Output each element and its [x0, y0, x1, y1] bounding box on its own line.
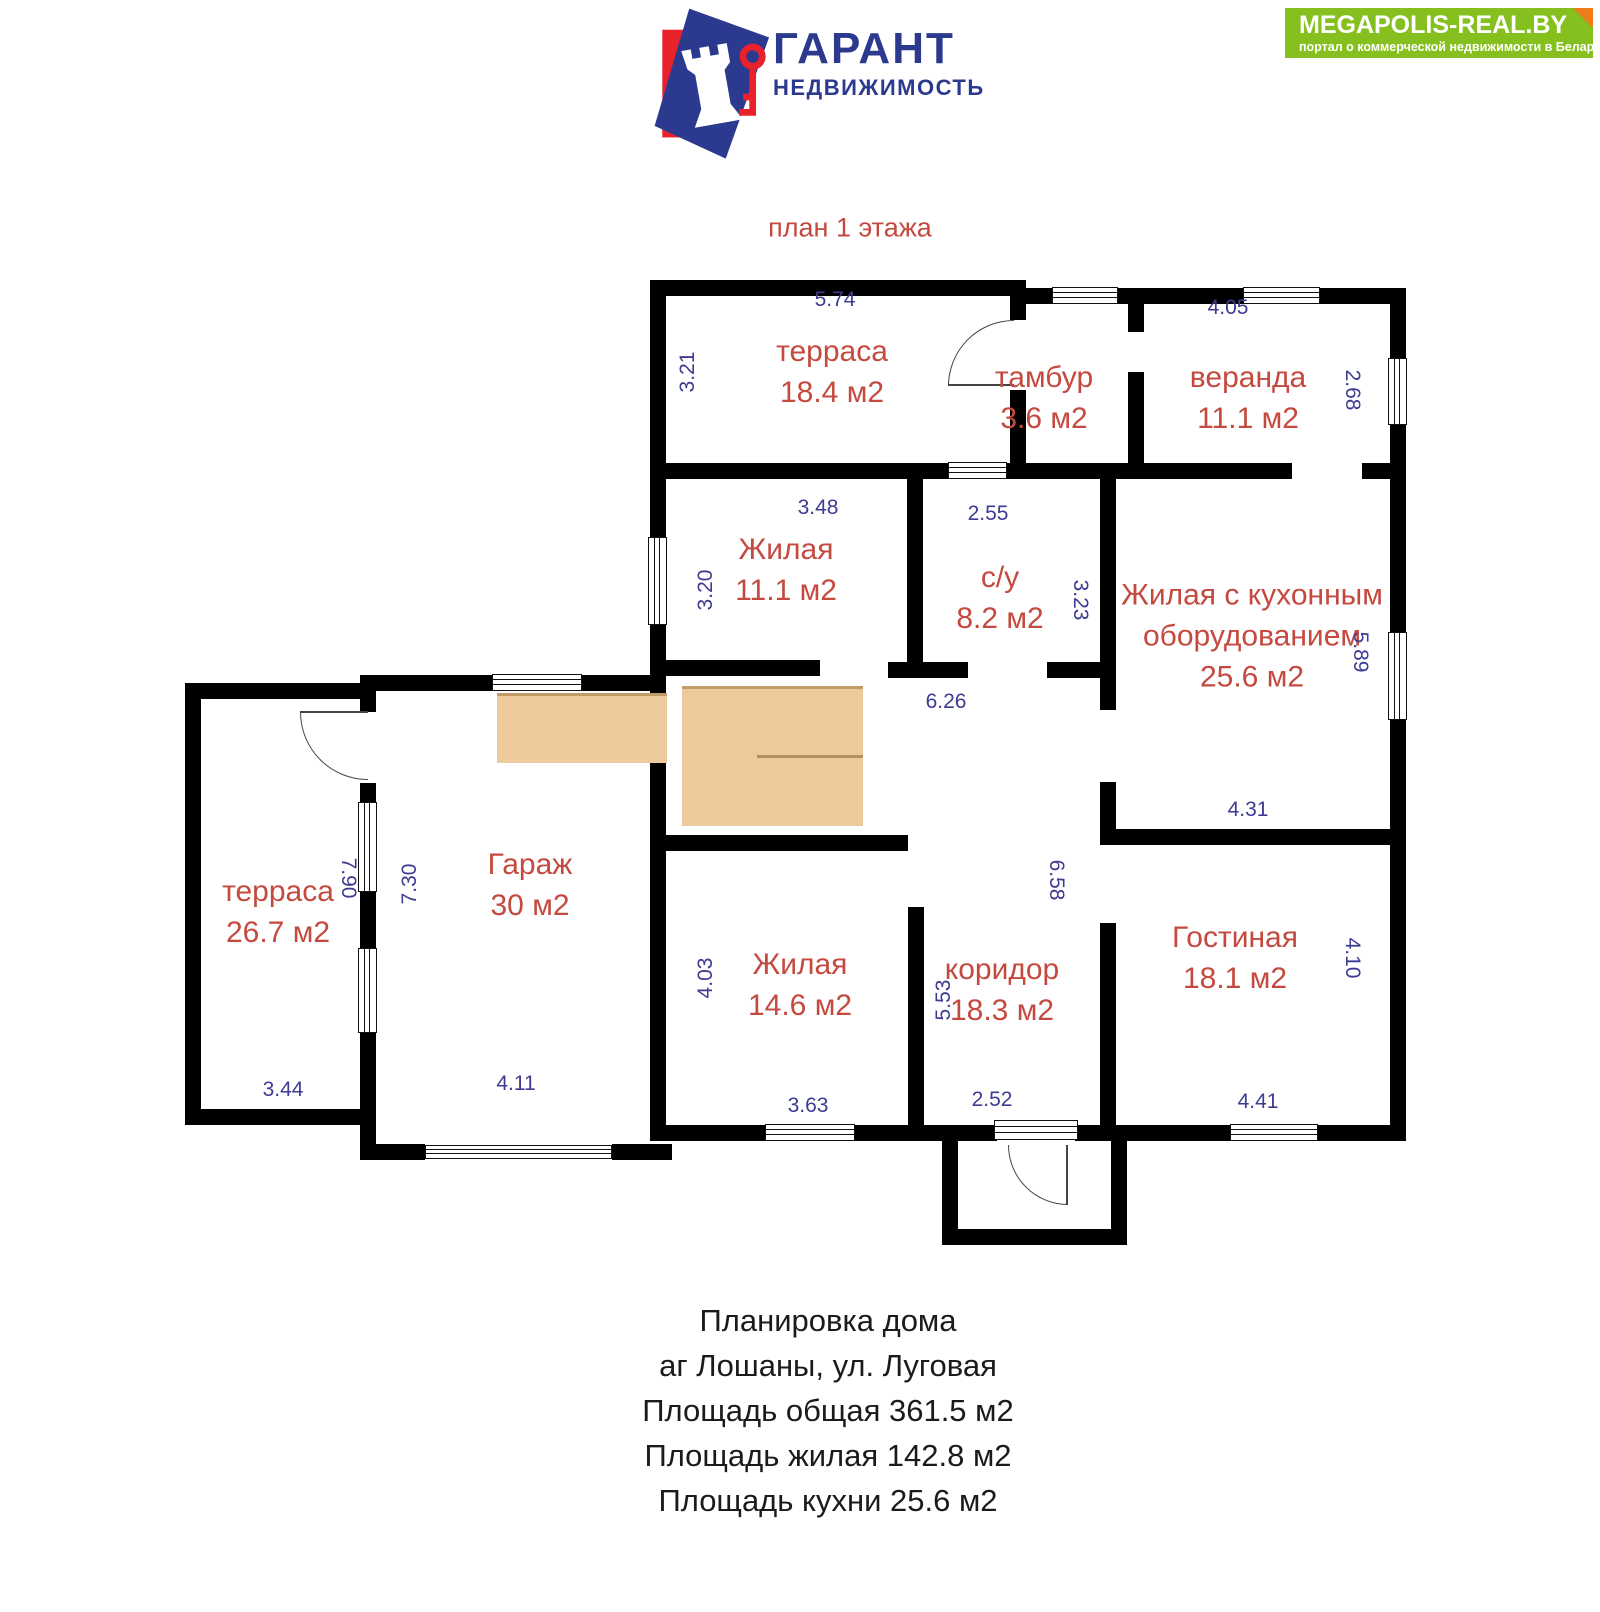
floor-plan-page: ГАРАНТ НЕДВИЖИМОСТЬ MEGAPOLIS-REAL.BY по…	[0, 0, 1600, 1612]
wall	[185, 1109, 376, 1125]
agency-name: ГАРАНТ НЕДВИЖИМОСТЬ	[773, 24, 985, 102]
room-name: с/у	[956, 557, 1043, 598]
dimension-label: 4.03	[694, 958, 718, 999]
agency-name-line1: ГАРАНТ	[773, 24, 985, 74]
wall	[888, 662, 968, 678]
wall	[1010, 280, 1026, 320]
dimension-label: 3.48	[798, 496, 839, 520]
wall	[650, 280, 666, 479]
room-name: терраса	[222, 871, 334, 912]
room-name: Жилая	[748, 944, 852, 985]
window	[358, 802, 377, 892]
wall	[1100, 923, 1116, 1141]
door-threshold	[994, 1120, 1078, 1140]
room-name: терраса	[776, 331, 888, 372]
wall	[942, 1229, 1127, 1245]
room-area: 18.3 м2	[945, 990, 1059, 1031]
wall	[360, 783, 376, 802]
dimension-label: 2.68	[1340, 370, 1364, 411]
room-area: 18.1 м2	[1172, 958, 1298, 999]
dimension-label: 4.31	[1228, 798, 1269, 822]
dimension-label: 7.90	[336, 858, 360, 899]
room-label-livingroom: Гостиная 18.1 м2	[1172, 917, 1298, 999]
wall	[360, 1033, 376, 1160]
wall	[185, 683, 360, 699]
portal-subtitle: портал о коммерческой недвижимости в Бел…	[1299, 40, 1600, 54]
wall	[360, 892, 376, 948]
wall	[1128, 304, 1144, 332]
wall	[582, 675, 666, 691]
wall	[1007, 463, 1292, 479]
wall	[1100, 829, 1406, 845]
window	[648, 537, 667, 625]
room-area: 26.7 м2	[222, 912, 334, 953]
wall	[650, 479, 666, 537]
window	[1243, 287, 1320, 304]
wall	[855, 1125, 997, 1141]
summary-line: Площадь кухни 25.6 м2	[642, 1478, 1013, 1523]
room-label-veranda: веранда 11.1 м2	[1190, 357, 1306, 439]
dimension-label: 4.10	[1340, 938, 1364, 979]
wall	[1075, 1125, 1230, 1141]
wall	[360, 1144, 425, 1160]
dimension-label: 5.53	[932, 980, 956, 1021]
wall	[1026, 288, 1052, 304]
wall	[612, 1144, 672, 1160]
dimension-label: 3.63	[788, 1094, 829, 1118]
window	[1230, 1124, 1318, 1141]
wall	[185, 683, 201, 1125]
dimension-label: 2.52	[972, 1088, 1013, 1112]
wall	[1390, 720, 1406, 1141]
room-label-garage: Гараж 30 м2	[488, 844, 573, 926]
door-leaf	[300, 711, 368, 713]
dimension-label: 4.05	[1208, 296, 1249, 320]
room-label-corridor: коридор 18.3 м2	[945, 949, 1059, 1031]
window	[492, 674, 582, 691]
summary-line: Планировка дома	[642, 1298, 1013, 1343]
window	[358, 948, 377, 1033]
dimension-label: 6.26	[926, 690, 967, 714]
wall	[650, 463, 948, 479]
summary-line: Площадь общая 361.5 м2	[642, 1388, 1013, 1433]
dimension-label: 2.55	[968, 502, 1009, 526]
wall	[650, 835, 908, 851]
room-area: 18.4 м2	[776, 372, 888, 413]
room-label-living1: Жилая 11.1 м2	[735, 529, 837, 611]
room-label-living2: Жилая 14.6 м2	[748, 944, 852, 1026]
window	[948, 462, 1007, 479]
agency-logo: ГАРАНТ НЕДВИЖИМОСТЬ	[645, 8, 975, 168]
agency-name-line2: НЕДВИЖИМОСТЬ	[773, 74, 985, 102]
dimension-label: 4.41	[1238, 1090, 1279, 1114]
room-name: Гараж	[488, 844, 573, 885]
wall	[666, 660, 820, 676]
room-area: 3.6 м2	[995, 398, 1093, 439]
wall	[376, 675, 492, 691]
banner-corner-fold-icon	[1573, 8, 1593, 28]
wall	[1390, 288, 1406, 358]
dimension-label: 5.89	[1348, 632, 1372, 673]
stair-edge-line	[757, 755, 863, 758]
portal-title: MEGAPOLIS-REAL.BY	[1299, 11, 1567, 40]
door-arc	[300, 712, 368, 780]
room-label-tambour: тамбур 3.6 м2	[995, 357, 1093, 439]
room-name: Жилая	[735, 529, 837, 570]
wall	[1318, 1125, 1406, 1141]
door-arc	[1008, 1145, 1068, 1205]
door-leaf	[1066, 1145, 1068, 1205]
wall	[908, 907, 924, 1141]
room-label-bathroom: с/у 8.2 м2	[956, 557, 1043, 639]
wall	[650, 1125, 765, 1141]
garage-door-threshold	[425, 1145, 612, 1159]
dimension-label: 3.20	[694, 570, 718, 611]
dimension-label: 4.11	[496, 1072, 535, 1096]
dimension-label: 7.30	[398, 864, 422, 905]
room-name: тамбур	[995, 357, 1093, 398]
room-area: 14.6 м2	[748, 985, 852, 1026]
wall	[360, 675, 376, 712]
wall	[1362, 463, 1406, 479]
plan-title: план 1 этажа	[768, 213, 932, 244]
room-area: 11.1 м2	[735, 570, 837, 611]
wall	[907, 479, 923, 678]
dimension-label: 5.74	[815, 288, 856, 312]
dimension-label: 6.58	[1044, 860, 1068, 901]
room-area: 11.1 м2	[1190, 398, 1306, 439]
wall	[1118, 288, 1144, 304]
rook-key-logo-icon	[645, 8, 770, 163]
room-name: веранда	[1190, 357, 1306, 398]
plan-summary: Планировка дома аг Лошаны, ул. Луговая П…	[642, 1298, 1013, 1523]
portal-banner: MEGAPOLIS-REAL.BY портал о коммерческой …	[1285, 8, 1593, 58]
room-area: 30 м2	[488, 885, 573, 926]
room-label-terrace-top: терраса 18.4 м2	[776, 331, 888, 413]
summary-line: Площадь жилая 142.8 м2	[642, 1433, 1013, 1478]
dimension-label: 3.23	[1068, 580, 1092, 621]
summary-line: аг Лошаны, ул. Луговая	[642, 1343, 1013, 1388]
dimension-label: 3.44	[263, 1078, 304, 1102]
room-name: Гостиная	[1172, 917, 1298, 958]
room-area: 8.2 м2	[956, 598, 1043, 639]
stairs-garage	[497, 693, 667, 763]
room-name: коридор	[945, 949, 1059, 990]
stairs-hall	[682, 686, 863, 826]
dimension-label: 3.21	[676, 352, 700, 393]
room-label-terrace-left: терраса 26.7 м2	[222, 871, 334, 953]
window	[765, 1124, 855, 1141]
window	[1052, 287, 1118, 304]
window	[1388, 358, 1407, 425]
